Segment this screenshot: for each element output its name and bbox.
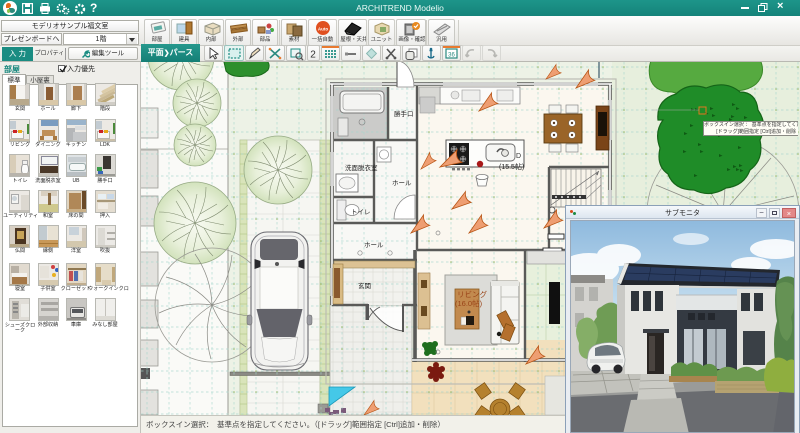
svg-text:ホール: ホール — [392, 179, 412, 187]
svg-text:D: D — [516, 153, 521, 160]
svg-text:2: 2 — [310, 50, 316, 61]
svg-text:36: 36 — [448, 53, 455, 59]
svg-text:(16.0帖): (16.0帖) — [455, 298, 483, 308]
svg-text:玄関: 玄関 — [358, 281, 371, 290]
svg-text:トイレ: トイレ — [351, 209, 371, 216]
svg-text:勝手口: 勝手口 — [394, 109, 414, 118]
svg-text:洗面脱衣室: 洗面脱衣室 — [345, 163, 378, 172]
svg-text:リビング: リビング — [457, 289, 487, 299]
svg-text:Auto: Auto — [318, 27, 328, 32]
svg-text:(15.5帖): (15.5帖) — [499, 162, 524, 171]
svg-text:ホール: ホール — [364, 241, 384, 249]
